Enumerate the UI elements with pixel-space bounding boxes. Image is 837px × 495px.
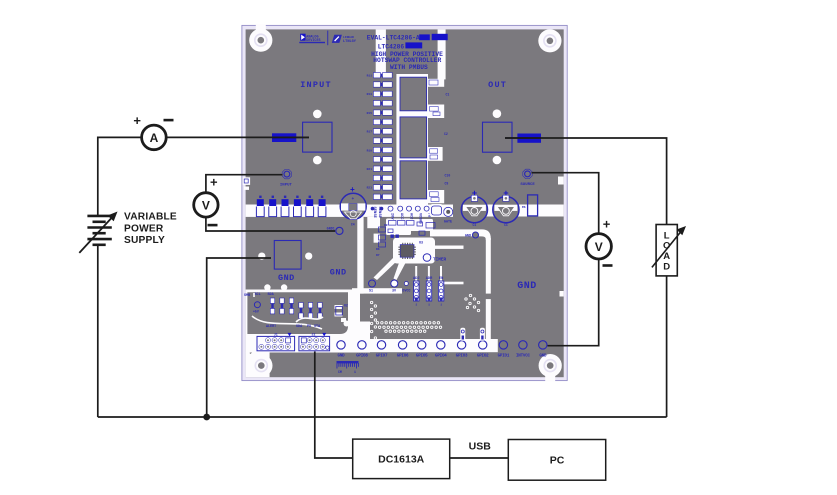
svg-text:C1: C1	[446, 93, 450, 97]
svg-text:+: +	[351, 197, 354, 202]
svg-text:SENSE: SENSE	[372, 207, 376, 219]
svg-text:R8: R8	[384, 224, 388, 227]
svg-text:EN: EN	[439, 277, 443, 281]
svg-text:HOTSWAP CONTROLLER: HOTSWAP CONTROLLER	[373, 57, 441, 64]
svg-text:SOURCE: SOURCE	[520, 183, 535, 187]
svg-text:ADR: ADR	[426, 277, 433, 281]
svg-text:DC1613A: DC1613A	[378, 454, 425, 466]
svg-text:C1: C1	[472, 223, 476, 227]
svg-text:R17: R17	[367, 131, 373, 134]
svg-text:GPIO6: GPIO6	[397, 354, 409, 358]
svg-text:ADJ: ADJ	[413, 277, 419, 281]
svg-text:GPIO1: GPIO1	[498, 354, 510, 358]
svg-text:ACC: ACC	[408, 213, 412, 220]
svg-text:GND: GND	[338, 354, 346, 358]
svg-text:+: +	[350, 186, 355, 195]
svg-text:GND: GND	[330, 267, 347, 277]
svg-text:ALERT: ALERT	[266, 325, 276, 329]
svg-text:GPIO5: GPIO5	[416, 354, 428, 358]
svg-text:S1: S1	[369, 290, 373, 294]
svg-text:CM: CM	[338, 370, 342, 374]
svg-text:GND: GND	[278, 273, 295, 283]
svg-text:TIMER: TIMER	[433, 257, 447, 262]
svg-text:USB: USB	[469, 441, 492, 453]
svg-text:1: 1	[440, 304, 442, 307]
svg-text:R11: R11	[367, 75, 373, 78]
svg-text:R6: R6	[376, 248, 380, 251]
svg-text:1: 1	[428, 304, 430, 307]
svg-text:+: +	[472, 189, 477, 199]
svg-text:R23: R23	[367, 187, 373, 190]
svg-text:V: V	[202, 199, 210, 213]
svg-text:GPIO2: GPIO2	[477, 354, 489, 358]
svg-text:GPIO7: GPIO7	[376, 354, 388, 358]
svg-text:GND: GND	[539, 354, 547, 358]
svg-text:C10: C10	[445, 174, 451, 178]
svg-text:+: +	[603, 216, 611, 231]
svg-text:C2: C2	[444, 132, 448, 136]
svg-text:STA: STA	[314, 325, 321, 329]
svg-text:A: A	[150, 131, 159, 145]
svg-text:ACC: ACC	[399, 213, 403, 220]
svg-text:SDA: SDA	[268, 293, 275, 297]
svg-text:R15: R15	[367, 112, 373, 115]
svg-text:C9: C9	[445, 182, 449, 186]
svg-text:+: +	[133, 113, 141, 128]
svg-text:WITH PMBUS: WITH PMBUS	[390, 64, 428, 71]
svg-text:V: V	[595, 240, 603, 254]
svg-text:LT​NLGY: LT​NLGY	[343, 40, 357, 44]
svg-text:20V: 20V	[390, 213, 394, 220]
svg-text:1: 1	[354, 370, 356, 374]
svg-text:U3: U3	[419, 242, 423, 246]
svg-text:+: +	[503, 189, 508, 199]
svg-text:GPIO4: GPIO4	[435, 354, 447, 358]
svg-text:R7: R7	[376, 254, 380, 257]
svg-text:+5V: +5V	[253, 310, 259, 314]
svg-text:INPUT: INPUT	[300, 80, 332, 90]
svg-text:SENSE: SENSE	[377, 207, 381, 219]
svg-text:GND: GND	[465, 235, 471, 239]
svg-text:R19: R19	[367, 149, 373, 152]
svg-text:GPIO8: GPIO8	[356, 354, 368, 358]
svg-text:GATE: GATE	[444, 220, 452, 224]
svg-text:VOSNS: VOSNS	[418, 213, 422, 225]
svg-text:D: D	[663, 262, 670, 273]
svg-text:C1: C1	[504, 223, 508, 227]
svg-text:J1: J1	[274, 333, 278, 337]
svg-text:LINEAR: LINEAR	[343, 36, 354, 39]
svg-text:SMB: SMB	[244, 294, 250, 298]
svg-text:R21: R21	[367, 168, 373, 171]
svg-text:INTVCC: INTVCC	[516, 354, 531, 358]
svg-text:+: +	[210, 174, 218, 189]
svg-text:EVAL-LTC4286-A: EVAL-LTC4286-A	[367, 35, 420, 42]
svg-text:1: 1	[415, 304, 417, 307]
svg-text:SDA: SDA	[296, 325, 303, 329]
svg-text:VARIABLE: VARIABLE	[124, 212, 177, 223]
svg-text:INPUT: INPUT	[280, 183, 293, 187]
svg-text:C4: C4	[351, 223, 355, 227]
svg-text:DVCC: DVCC	[402, 290, 410, 294]
svg-text:PU: PU	[307, 325, 311, 329]
svg-text:R13: R13	[367, 93, 373, 96]
svg-text:GND: GND	[517, 281, 537, 292]
svg-text:POWER: POWER	[124, 223, 164, 234]
svg-text:LTC4286: LTC4286	[378, 44, 405, 51]
svg-text:SCL: SCL	[255, 293, 261, 297]
svg-text:OUT: OUT	[488, 80, 507, 90]
svg-text:L: L	[664, 230, 670, 241]
svg-text:J2: J2	[311, 333, 315, 337]
svg-text:SUPPLY: SUPPLY	[124, 235, 165, 246]
svg-text:M6: M6	[522, 206, 526, 209]
svg-text:GPIO3: GPIO3	[456, 354, 468, 358]
svg-text:U2: U2	[344, 304, 348, 308]
svg-text:PC: PC	[550, 455, 565, 467]
